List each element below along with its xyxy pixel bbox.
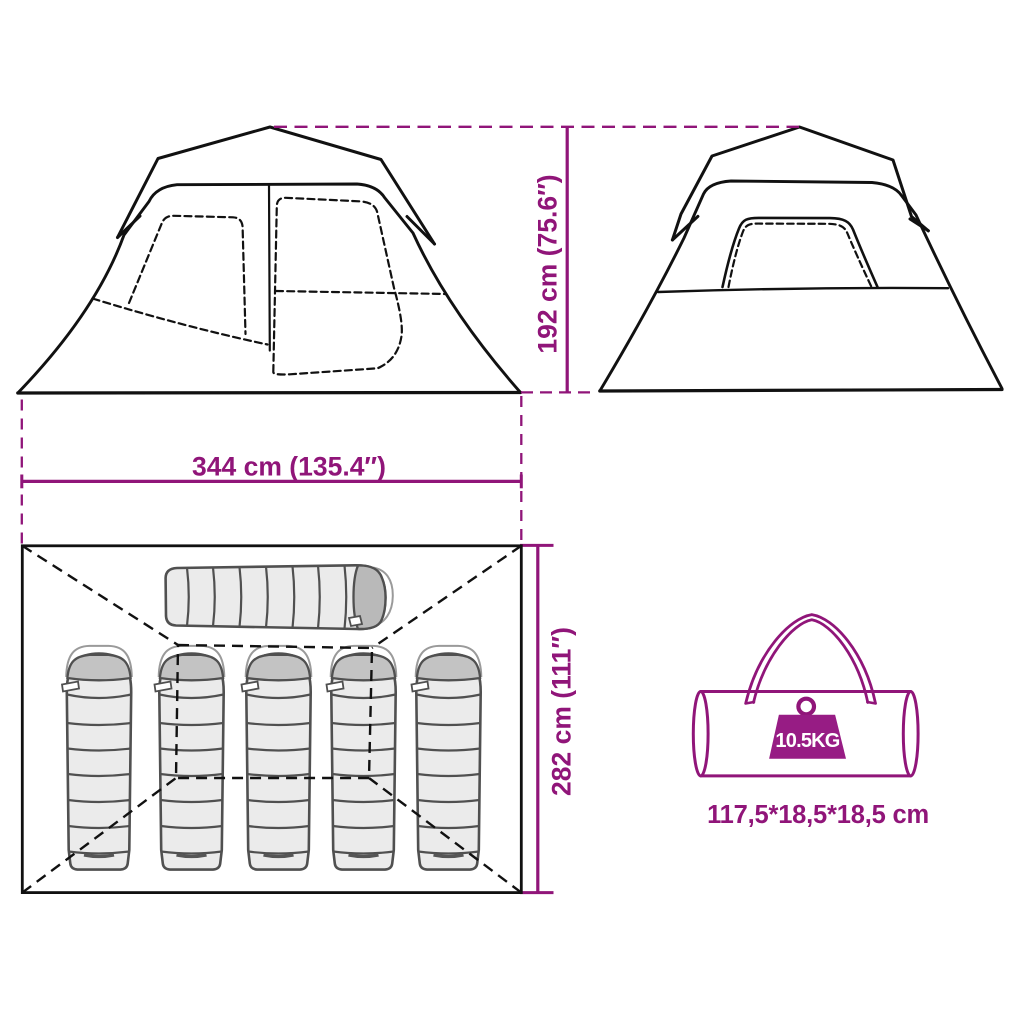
svg-text:117,5*18,5*18,5 cm: 117,5*18,5*18,5 cm <box>707 801 929 829</box>
svg-text:192 cm (75.6″): 192 cm (75.6″) <box>533 174 563 353</box>
svg-text:282 cm (111″): 282 cm (111″) <box>547 627 577 796</box>
svg-text:10.5KG: 10.5KG <box>775 730 839 752</box>
svg-text:344 cm (135.4″): 344 cm (135.4″) <box>192 452 386 482</box>
